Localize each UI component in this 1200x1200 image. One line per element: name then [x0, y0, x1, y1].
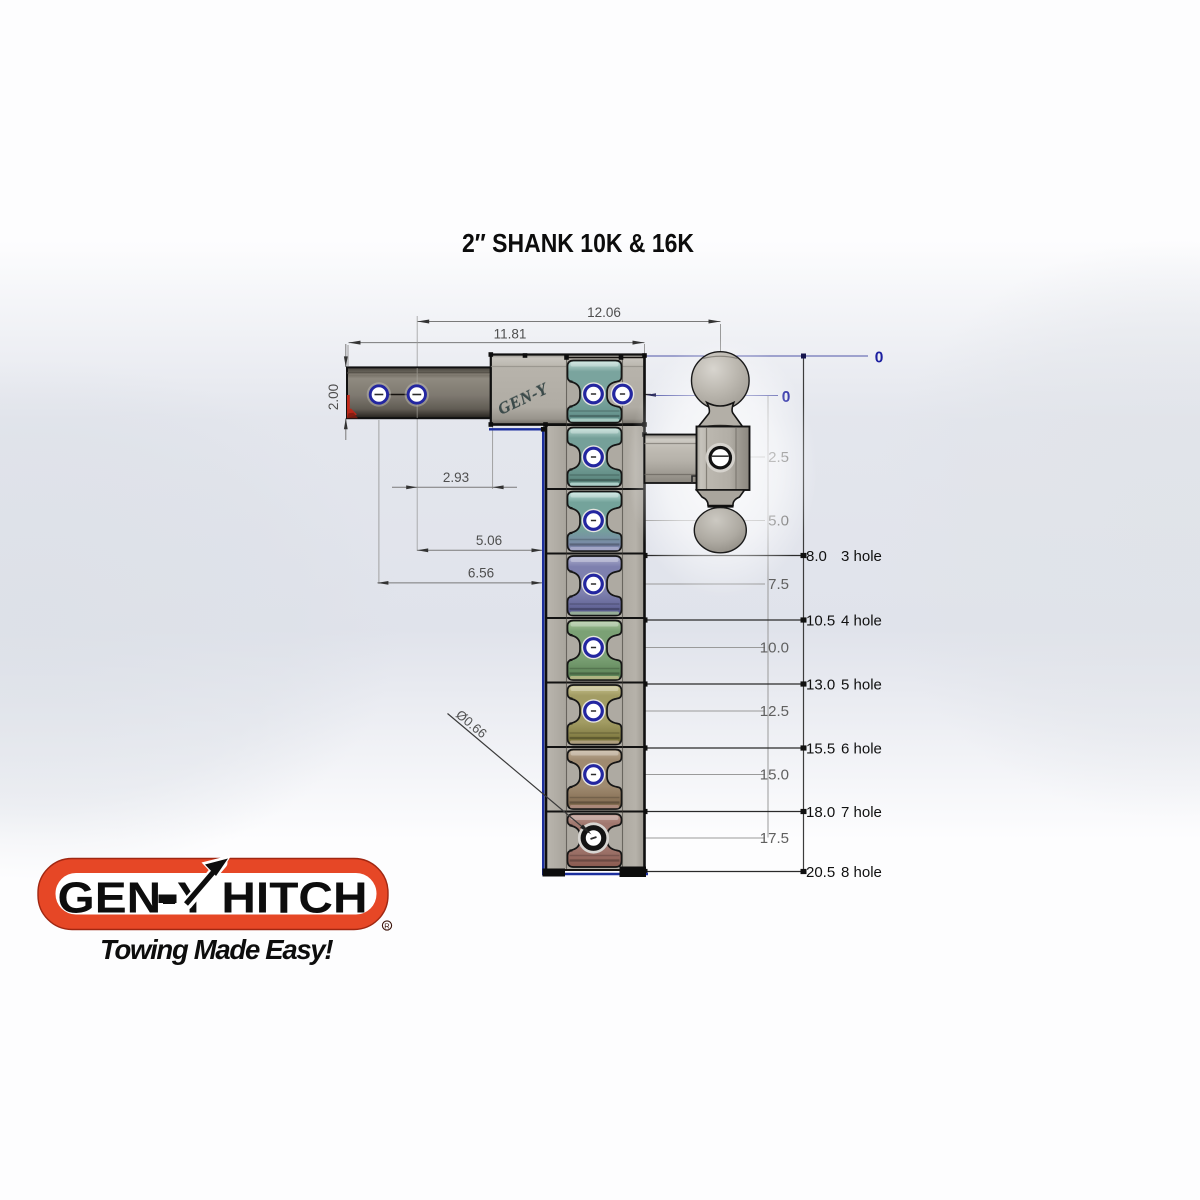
svg-text:10.0: 10.0 [760, 640, 789, 657]
svg-text:11.81: 11.81 [494, 327, 527, 342]
svg-text:13.0: 13.0 [806, 677, 835, 694]
svg-text:20.5: 20.5 [806, 864, 835, 881]
svg-text:2.93: 2.93 [443, 470, 469, 485]
svg-text:8 hole: 8 hole [841, 864, 882, 881]
svg-text:5 hole: 5 hole [841, 677, 882, 694]
svg-text:7 hole: 7 hole [841, 804, 882, 821]
svg-text:2.00: 2.00 [326, 384, 341, 410]
svg-text:0: 0 [875, 350, 884, 367]
svg-text:4 hole: 4 hole [841, 613, 882, 630]
svg-text:15.5: 15.5 [806, 741, 835, 758]
svg-text:10.5: 10.5 [806, 613, 835, 630]
svg-text:Towing Made Easy!: Towing Made Easy! [100, 934, 333, 965]
svg-text:6 hole: 6 hole [841, 741, 882, 758]
svg-text:12.06: 12.06 [587, 305, 621, 320]
svg-text:8.0: 8.0 [806, 548, 827, 565]
svg-text:5.06: 5.06 [476, 533, 502, 548]
svg-text:R: R [384, 922, 390, 931]
svg-text:17.5: 17.5 [760, 830, 789, 847]
svg-text:15.0: 15.0 [760, 767, 789, 784]
svg-text:6.56: 6.56 [468, 566, 494, 581]
svg-text:18.0: 18.0 [806, 804, 835, 821]
svg-text:2″ SHANK 10K & 16K: 2″ SHANK 10K & 16K [462, 228, 694, 258]
svg-text:12.5: 12.5 [760, 703, 789, 720]
svg-text:3 hole: 3 hole [841, 548, 882, 565]
